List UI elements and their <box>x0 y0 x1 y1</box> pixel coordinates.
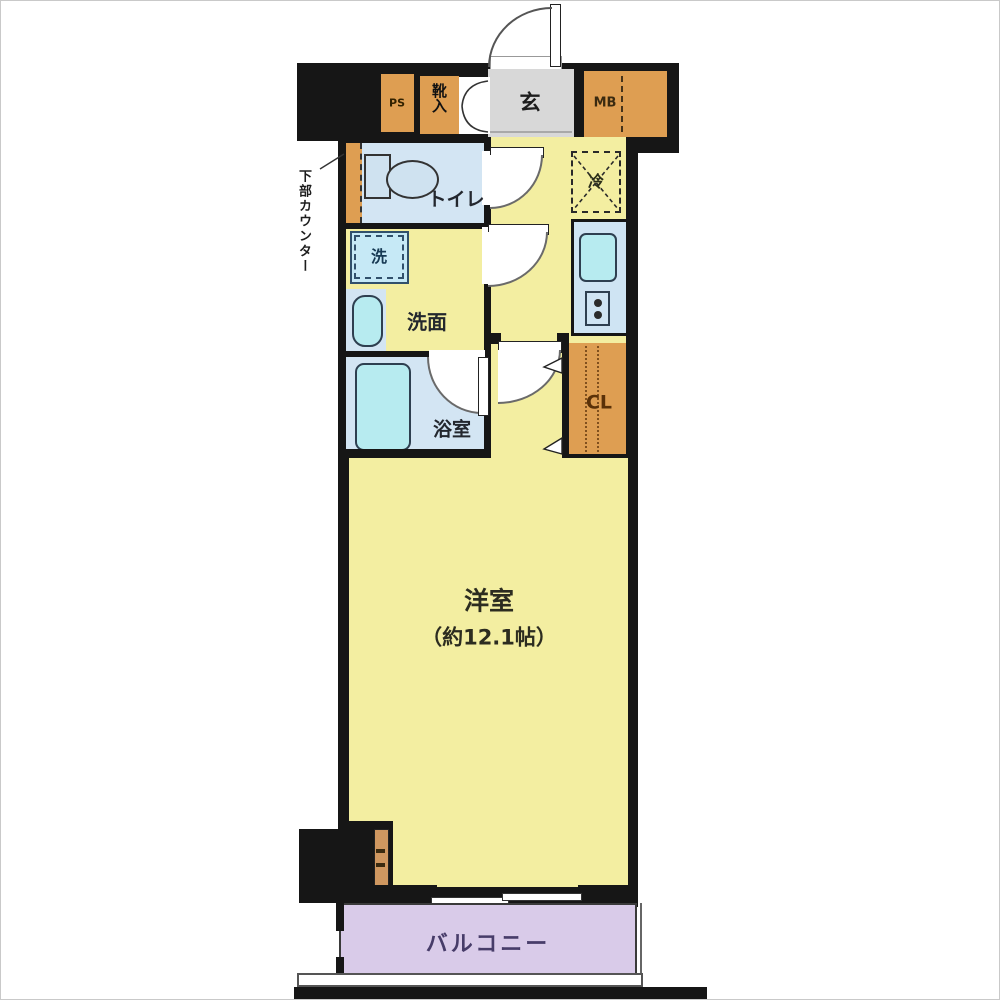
main-room-size-label: （約12.1帖） <box>421 628 557 649</box>
toilet-label: トイレ <box>427 191 484 210</box>
under-counter-note: 下部カウンター <box>297 169 310 274</box>
closet-fold-door-mark <box>544 358 562 373</box>
balcony-label: バルコニー <box>426 934 551 956</box>
ps-label: PS <box>389 98 405 109</box>
bathroom-label: 浴室 <box>433 421 471 440</box>
shoe-door-fold-arc <box>462 106 488 132</box>
meter-box-label: MB <box>594 97 617 110</box>
counter-note-leader-line <box>320 154 344 169</box>
detail-overlay <box>1 1 1000 1000</box>
shoe-cabinet-label: 靴入 <box>431 83 446 113</box>
closet-label: CL <box>586 394 612 413</box>
main-room-label: 洋室 <box>464 589 514 614</box>
entrance-label: 玄 <box>520 93 541 114</box>
refrigerator-label: 冷 <box>588 174 604 190</box>
washroom-label: 洗面 <box>407 312 447 332</box>
floor-plan: PS 靴入 玄 MB 下部カウンター トイレ 洗 洗面 浴室 冷 CL 洋室 （… <box>0 0 1000 1000</box>
shoe-door-fold-arc <box>462 81 488 106</box>
closet-fold-door-mark <box>544 438 562 454</box>
washing-machine-label: 洗 <box>371 249 387 265</box>
